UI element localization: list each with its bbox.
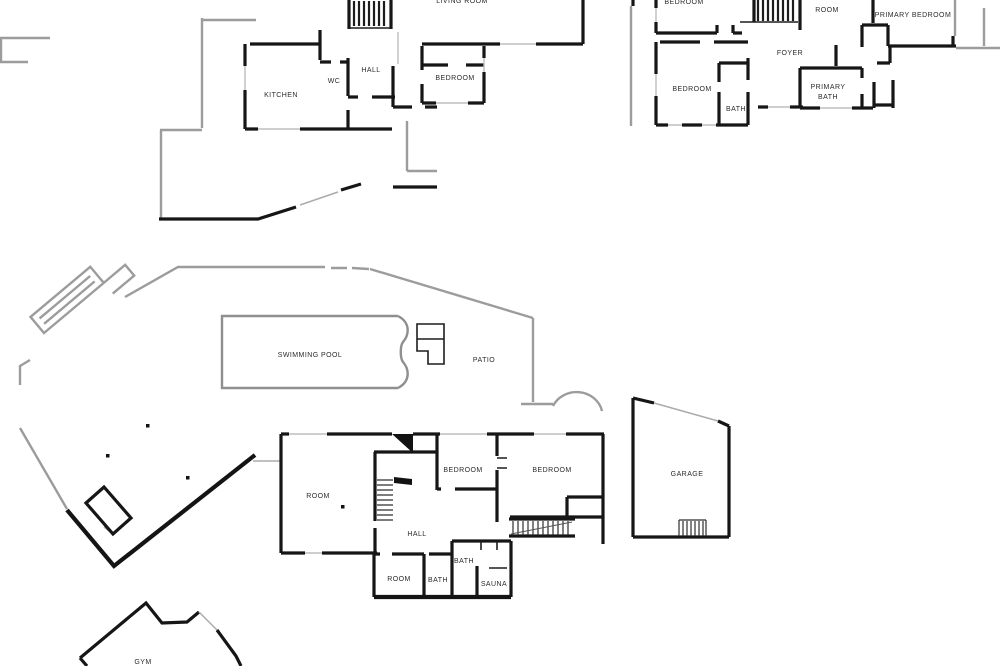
- room-label-hall: HALL: [361, 67, 380, 74]
- room-label-wc: WC: [328, 78, 341, 85]
- room-label-bedroom-left: BEDROOM: [443, 467, 482, 474]
- wing-connector: [104, 461, 281, 534]
- room-label-bedroom-top: BEDROOM: [664, 0, 703, 6]
- garage-outline: [633, 398, 729, 537]
- boundary-dashes: [300, 192, 338, 205]
- room-label-primary-bath-line1: PRIMARY: [811, 84, 846, 91]
- room-label-bedroom: BEDROOM: [672, 86, 711, 93]
- room-label-patio: PATIO: [473, 357, 495, 364]
- room-label-bedroom-right: BEDROOM: [532, 467, 571, 474]
- room-label-primary-bath-line2: BATH: [818, 94, 838, 101]
- boundary-wall: [159, 184, 437, 219]
- terrace-steps: [31, 249, 135, 344]
- floor-plan-lower: SWIMMING POOL PATIO ROOM BEDROOM BEDROOM…: [20, 249, 729, 666]
- staircase-icon: [377, 480, 393, 520]
- wing-room: [86, 487, 131, 534]
- wing-walls: [67, 455, 255, 566]
- room-label-gym: GYM: [134, 659, 151, 666]
- walls: [245, 0, 583, 129]
- room-label-room: ROOM: [306, 493, 330, 500]
- staircase-icon: [740, 0, 800, 30]
- windows: [245, 32, 536, 129]
- room-label-swimming-pool: SWIMMING POOL: [278, 352, 343, 359]
- house-walls: [281, 434, 604, 597]
- room-label-living-room: LIVING ROOM: [436, 0, 488, 5]
- house-detail-ticks: [481, 458, 507, 568]
- room-label-bath: BATH: [726, 106, 746, 113]
- room-label-garage: GARAGE: [671, 471, 704, 478]
- room-label-bedroom: BEDROOM: [435, 75, 474, 82]
- room-label-sauna: SAUNA: [481, 581, 507, 588]
- floor-plan-upper-right: BEDROOM ROOM PRIMARY BEDROOM FOYER BEDRO…: [631, 0, 1000, 126]
- room-label-kitchen: KITCHEN: [264, 92, 298, 99]
- room-label-bath-upper: BATH: [454, 558, 474, 565]
- fireplace: [392, 434, 413, 485]
- room-label-room: ROOM: [815, 7, 839, 14]
- deck-outline: [0, 18, 437, 218]
- room-label-bath-lower: BATH: [428, 577, 448, 584]
- room-label-room-lower: ROOM: [387, 576, 411, 583]
- floor-plan-svg: LIVING ROOM KITCHEN WC HALL BEDROOM BEDR…: [0, 0, 1000, 666]
- room-label-hall: HALL: [407, 531, 426, 538]
- staircase-icon: [509, 519, 575, 536]
- room-label-primary-bedroom: PRIMARY BEDROOM: [875, 12, 952, 19]
- gym-outline: [80, 603, 241, 666]
- pool-steps-structure: [417, 324, 444, 364]
- floor-plan-upper-left: LIVING ROOM KITCHEN WC HALL BEDROOM: [0, 0, 583, 219]
- floor-plan-image: LIVING ROOM KITCHEN WC HALL BEDROOM BEDR…: [0, 0, 1000, 666]
- staircase-icon: [349, 0, 391, 29]
- staircase-icon: [679, 520, 706, 536]
- room-label-foyer: FOYER: [777, 50, 803, 57]
